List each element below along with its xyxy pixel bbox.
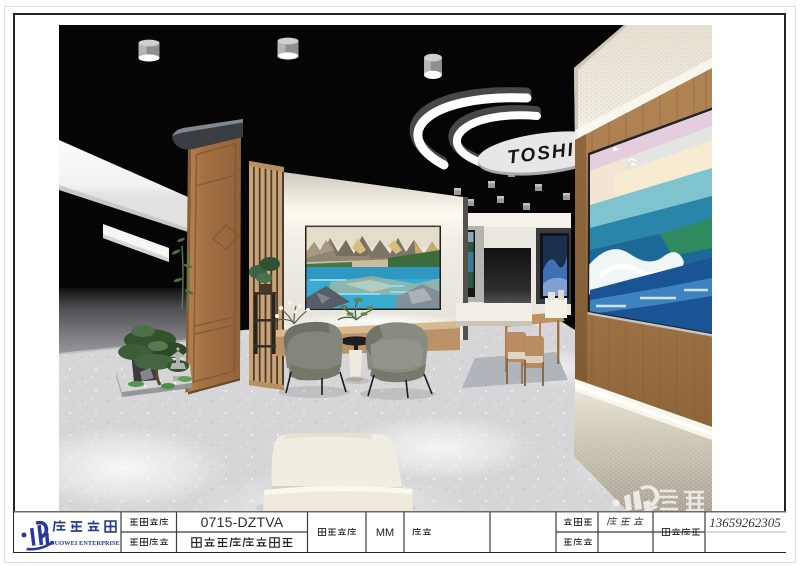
svg-text:13659262305: 13659262305 [709,515,781,530]
svg-text:MM: MM [376,527,394,539]
svg-text:DUOWEI ENTERPRISE: DUOWEI ENTERPRISE [50,540,120,547]
svg-text:0715-DZTVA: 0715-DZTVA [201,514,284,530]
